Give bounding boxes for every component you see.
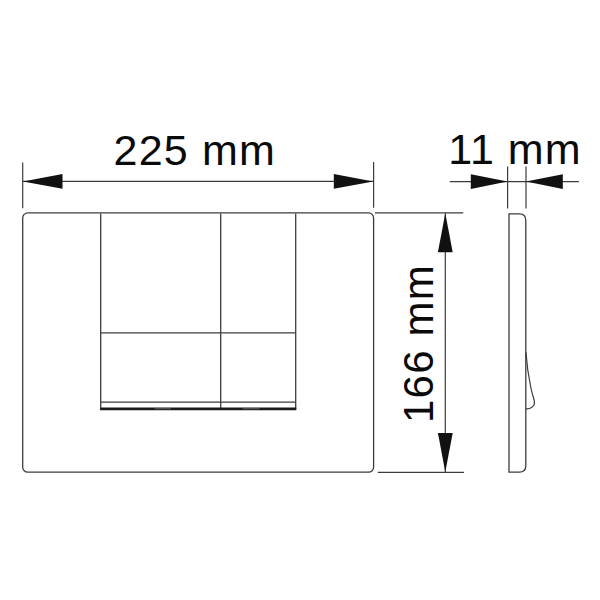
svg-text:11 mm: 11 mm xyxy=(448,125,581,173)
svg-text:225 mm: 225 mm xyxy=(114,126,277,174)
svg-text:166 mm: 166 mm xyxy=(395,264,442,423)
